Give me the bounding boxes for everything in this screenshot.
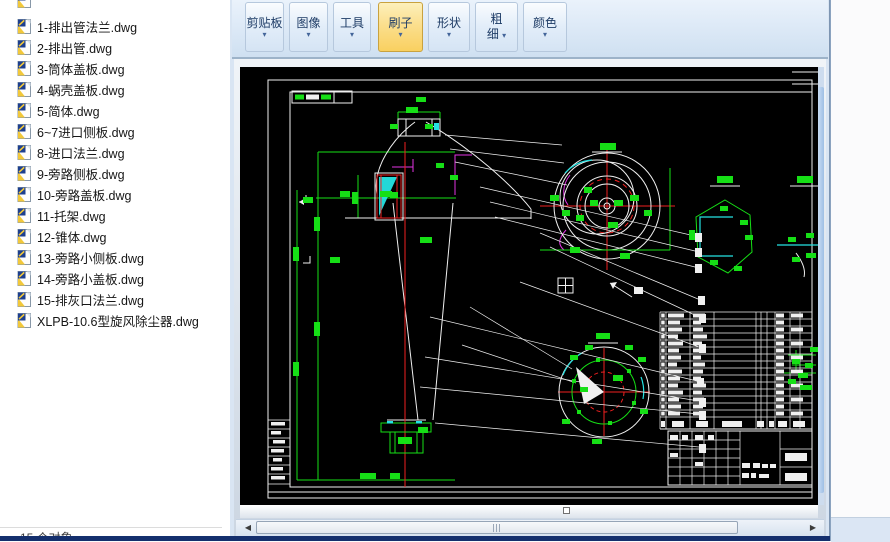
file-list-item[interactable]: 6~7进口侧板.dwg	[0, 121, 230, 142]
ribbon-group-3[interactable]: 工具▾	[333, 2, 371, 52]
background-window[interactable]	[830, 0, 890, 541]
scroll-left-arrow[interactable]: ◀	[241, 522, 255, 534]
dwg-file-icon	[17, 166, 32, 181]
cad-drawing	[240, 67, 818, 505]
canvas-margin	[240, 505, 818, 518]
dwg-file-icon	[17, 103, 32, 118]
ribbon-group-6[interactable]: 粗细 ▾	[475, 2, 518, 52]
dwg-file-icon	[17, 250, 32, 265]
file-list-item[interactable]: 5-简体.dwg	[0, 100, 230, 121]
dwg-file-icon	[17, 124, 32, 139]
file-name: 1-排出管法兰.dwg	[37, 17, 137, 36]
file-list-item[interactable]: XLPB-10.6型旋风除尘器.dwg	[0, 310, 230, 331]
vertical-scrollbar[interactable]	[818, 67, 824, 505]
dwg-file-icon	[17, 292, 32, 307]
file-name: 3-筒体盖板.dwg	[37, 59, 125, 78]
file-list-item[interactable]: 4-蜗壳盖板.dwg	[0, 79, 230, 100]
ribbon-group-7[interactable]: 颜色▾	[523, 2, 567, 52]
parts-list-table	[660, 312, 812, 429]
file-name: XLPB-10.6型旋风除尘器.dwg	[37, 311, 199, 330]
plan-view	[540, 153, 670, 297]
dwg-file-icon	[17, 145, 32, 160]
sheet-number-box	[292, 91, 352, 103]
clipped-file-icon	[17, 0, 32, 8]
ribbon-group-5[interactable]: 形状▾	[428, 2, 470, 52]
status-separator	[0, 527, 222, 528]
horizontal-scrollbar[interactable]: ◀ ▶	[236, 519, 824, 536]
file-name: 6~7进口侧板.dwg	[37, 122, 135, 141]
ribbon-group-1[interactable]: 剪贴板▾	[245, 2, 284, 52]
file-list-item[interactable]: 9-旁路侧板.dwg	[0, 163, 230, 184]
canvas-area: ◀ ▶	[234, 59, 826, 536]
file-name: 11-托架.dwg	[37, 206, 106, 225]
file-list-item[interactable]: 2-排出管.dwg	[0, 37, 230, 58]
file-list-item[interactable]: 15-排灰口法兰.dwg	[0, 289, 230, 310]
file-list-item[interactable]: 10-旁路盖板.dwg	[0, 184, 230, 205]
file-name: 8-进口法兰.dwg	[37, 143, 125, 162]
title-block	[668, 431, 812, 485]
dwg-file-icon	[17, 271, 32, 286]
file-name: 2-排出管.dwg	[37, 38, 112, 57]
cad-image[interactable]	[240, 67, 818, 505]
dwg-file-icon	[17, 187, 32, 202]
file-name: 15-排灰口法兰.dwg	[37, 290, 144, 309]
revision-table	[268, 420, 290, 484]
file-list-item[interactable]: 12-锥体.dwg	[0, 226, 230, 247]
dwg-file-icon	[17, 313, 32, 328]
file-list-item[interactable]: 13-旁路小侧板.dwg	[0, 247, 230, 268]
file-name: 4-蜗壳盖板.dwg	[37, 80, 125, 99]
file-name: 12-锥体.dwg	[37, 227, 106, 246]
file-list-item[interactable]: 1-排出管法兰.dwg	[0, 16, 230, 37]
dwg-file-icon	[17, 61, 32, 76]
background-window-band	[831, 517, 890, 542]
front-view-dimensions	[297, 112, 456, 480]
file-list-item[interactable]: 8-进口法兰.dwg	[0, 142, 230, 163]
paint-window: 剪贴板▾图像▾工具▾刷子▾形状▾粗细 ▾颜色▾	[230, 0, 830, 536]
ribbon-group-2[interactable]: 图像▾	[289, 2, 328, 52]
dwg-file-icon	[17, 208, 32, 223]
file-list-item[interactable]: 11-托架.dwg	[0, 205, 230, 226]
bottom-view	[559, 347, 649, 437]
file-name: 13-旁路小侧板.dwg	[37, 248, 144, 267]
file-name: 9-旁路侧板.dwg	[37, 164, 125, 183]
file-name: 5-简体.dwg	[37, 101, 100, 120]
screen: 1-排出管法兰.dwg2-排出管.dwg3-筒体盖板.dwg4-蜗壳盖板.dwg…	[0, 0, 890, 541]
taskbar-edge	[0, 536, 830, 541]
horizontal-scroll-thumb[interactable]	[256, 521, 738, 534]
canvas-resize-handle[interactable]	[563, 507, 570, 514]
dwg-file-icon	[17, 19, 32, 34]
ribbon-group-4[interactable]: 刷子▾	[378, 2, 423, 52]
file-name: 14-旁路小盖板.dwg	[37, 269, 144, 288]
aux-lines	[392, 155, 570, 250]
file-list-panel: 1-排出管法兰.dwg2-排出管.dwg3-筒体盖板.dwg4-蜗壳盖板.dwg…	[0, 0, 231, 536]
file-list: 1-排出管法兰.dwg2-排出管.dwg3-筒体盖板.dwg4-蜗壳盖板.dwg…	[0, 16, 230, 331]
scroll-right-arrow[interactable]: ▶	[806, 522, 820, 534]
file-list-item[interactable]: 14-旁路小盖板.dwg	[0, 268, 230, 289]
object-count-status: 15 个对象	[20, 529, 73, 536]
ribbon: 剪贴板▾图像▾工具▾刷子▾形状▾粗细 ▾颜色▾	[232, 0, 828, 59]
sheet-inner-border	[290, 92, 812, 487]
vertical-scroll-thumb[interactable]	[818, 87, 824, 493]
file-list-item[interactable]: 3-筒体盖板.dwg	[0, 58, 230, 79]
view-direction-arrows	[299, 195, 310, 263]
dwg-file-icon	[17, 229, 32, 244]
dwg-file-icon	[17, 82, 32, 97]
file-name: 10-旁路盖板.dwg	[37, 185, 131, 204]
scroll-thumb-grip	[493, 524, 502, 532]
dwg-file-icon	[17, 40, 32, 55]
